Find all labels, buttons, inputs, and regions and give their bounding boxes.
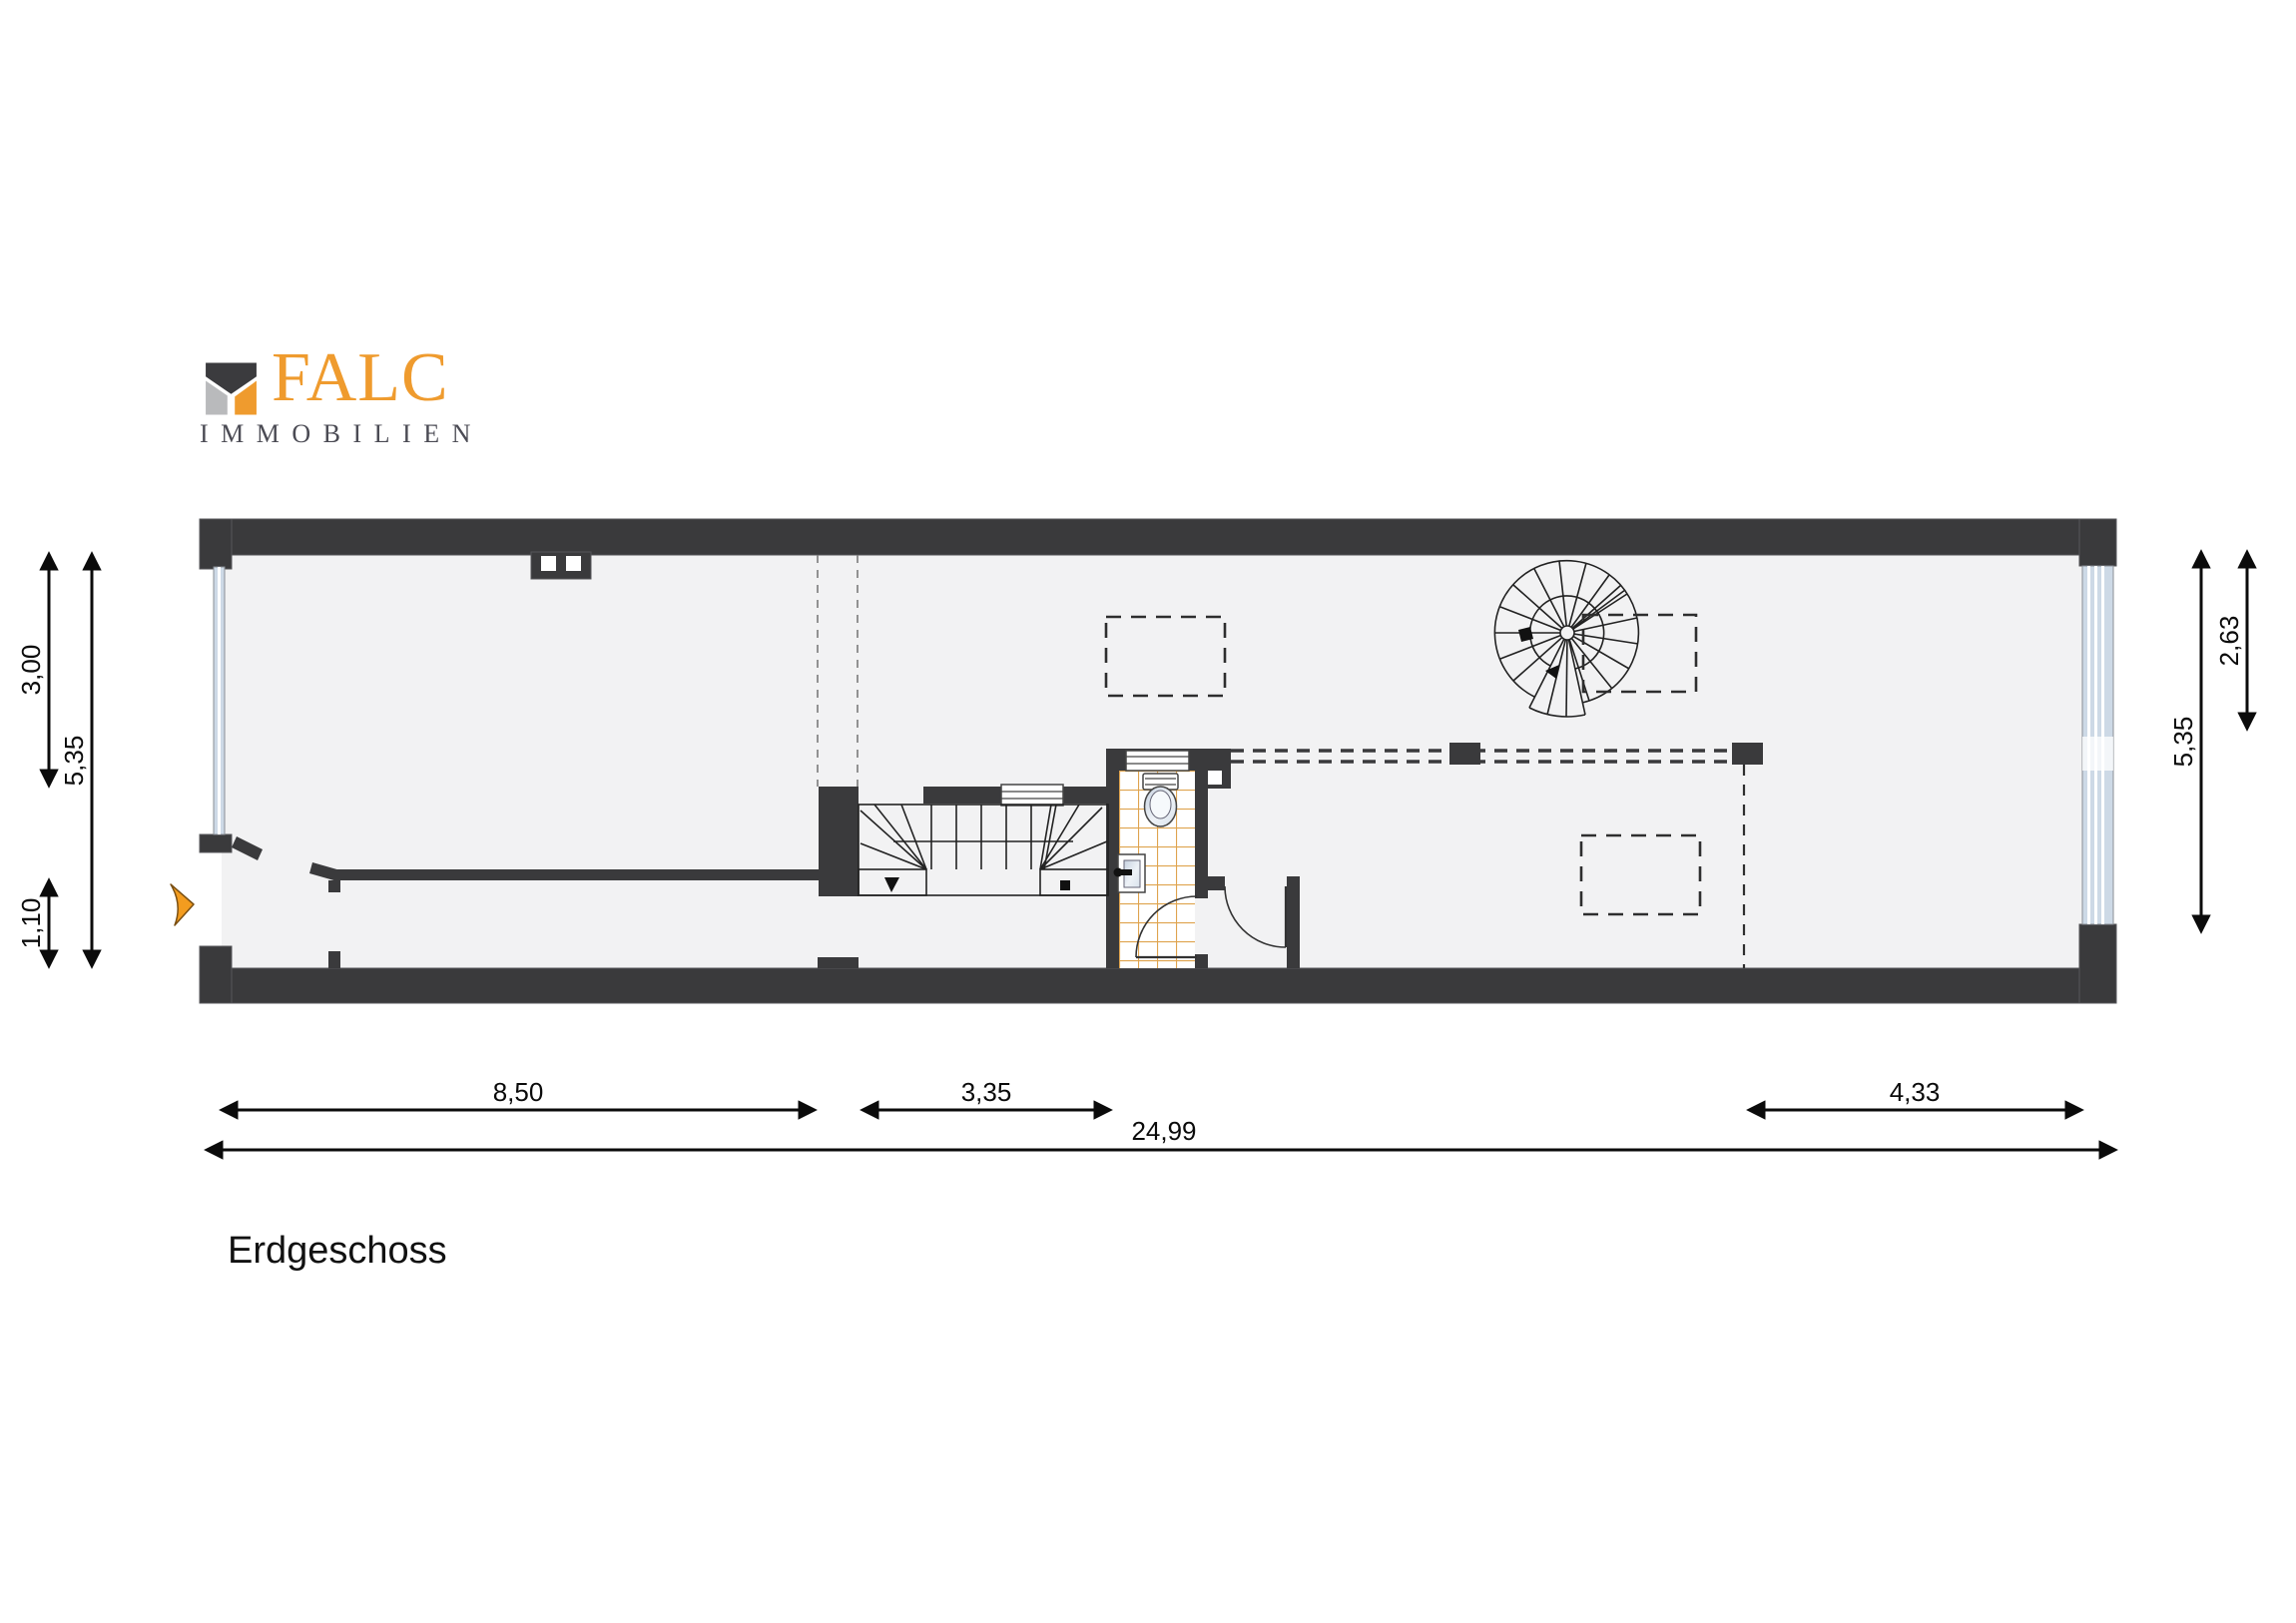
dim-right-1: 5,35 xyxy=(2168,717,2198,768)
dim-bottom-1: 8,50 xyxy=(493,1077,544,1107)
dim-left-2: 5,35 xyxy=(59,736,89,787)
dim-left-3: 1,10 xyxy=(16,898,46,949)
entrance-arrow-icon xyxy=(171,884,194,925)
dim-left-1: 3,00 xyxy=(16,645,46,696)
bottom-wall xyxy=(200,968,2116,1003)
floor-title: Erdgeschoss xyxy=(228,1230,447,1273)
beam-support-1 xyxy=(1449,743,1480,765)
chimney-vent-icon xyxy=(531,552,591,579)
long-interior-wall xyxy=(334,869,819,880)
stair-marker xyxy=(1060,880,1070,890)
bottom-wall-stub xyxy=(818,957,859,968)
dim-right-2: 2,63 xyxy=(2214,616,2244,667)
left-bottom-corner xyxy=(200,946,232,1003)
toilet-icon xyxy=(1143,774,1178,826)
hall-door-jamb-left xyxy=(1208,876,1225,890)
left-top-corner xyxy=(200,519,232,569)
wall-stub-upper xyxy=(328,880,340,892)
radiator-icon xyxy=(1001,785,1063,806)
wc-right-wall xyxy=(1195,771,1208,898)
left-window xyxy=(214,567,225,834)
hall-door-wall xyxy=(1287,876,1300,968)
dim-bottom-total: 24,99 xyxy=(1131,1116,1196,1146)
floorplan-drawing: 8,50 3,35 4,33 24,99 3,00 5,35 1,10 5,35… xyxy=(0,0,2296,1623)
sink-icon xyxy=(1114,854,1146,892)
wall-stub-lower xyxy=(328,951,340,968)
dim-bottom-2: 3,35 xyxy=(961,1077,1012,1107)
dim-bottom-3: 4,33 xyxy=(1890,1077,1941,1107)
right-window xyxy=(2082,566,2113,924)
beam-support-2 xyxy=(1732,743,1763,765)
top-wall xyxy=(200,519,2116,555)
right-bottom-corner xyxy=(2079,924,2116,1003)
wc-wall-niche xyxy=(1206,771,1222,785)
left-door-jamb xyxy=(200,834,232,852)
wc-radiator-icon xyxy=(1126,751,1189,771)
stair-side-wall xyxy=(819,787,859,896)
right-top-corner xyxy=(2079,519,2116,566)
floorplan-page: FALC IMMOBILIEN xyxy=(0,0,2296,1623)
